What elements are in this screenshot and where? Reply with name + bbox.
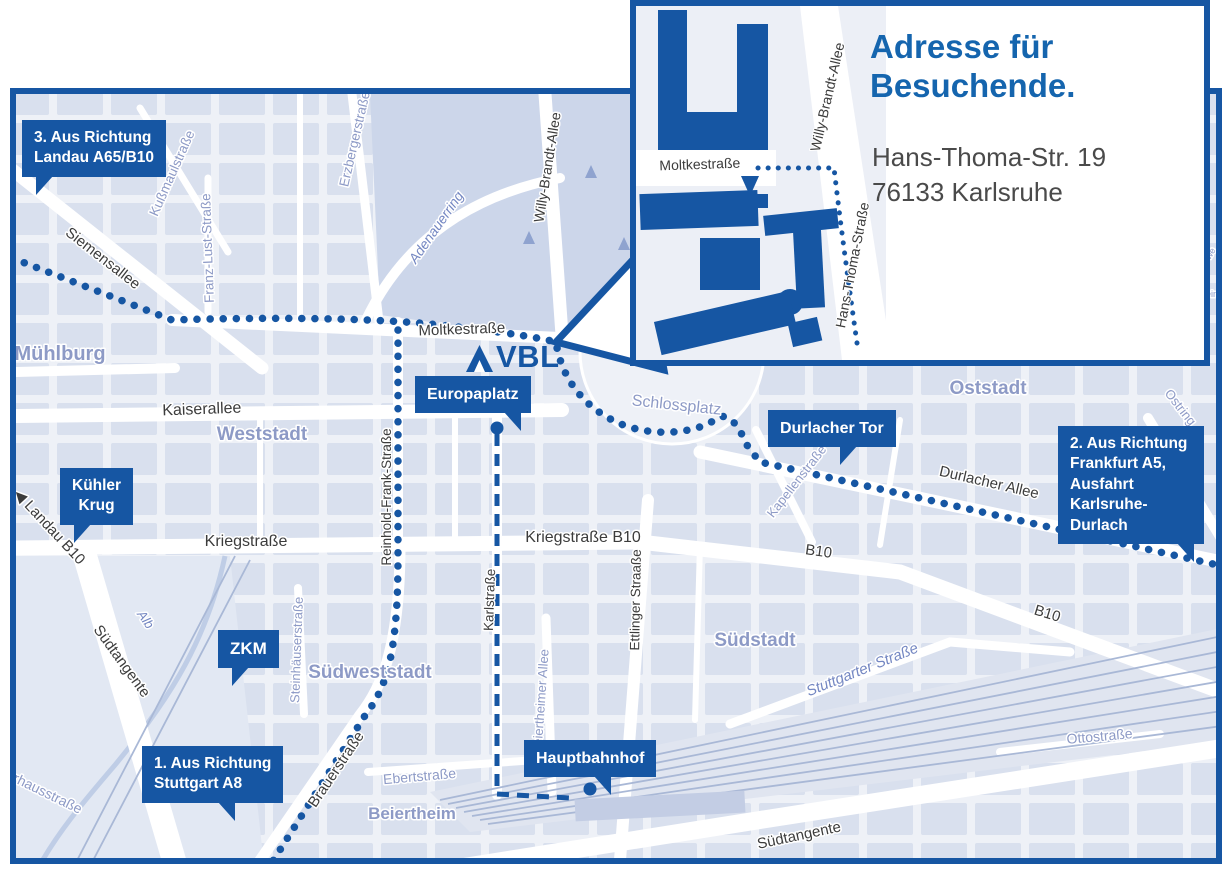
badge-route2-frankfurt: 2. Aus Richtung Frankfurt A5, Ausfahrt K… [1058,426,1204,544]
badge-route2-line1: 2. Aus Richtung [1070,434,1192,454]
badge-kuehler-line1: Kühler [72,476,121,496]
badge-europaplatz: Europaplatz [415,376,531,413]
badge-route2-line2: Frankfurt A5, [1070,454,1192,474]
badge-route1-stuttgart: 1. Aus Richtung Stuttgart A8 [142,746,283,803]
address-inset-card: Moltkestraße Willy-Brandt-Allee Hans-Tho… [630,0,1210,366]
district-label-beiertheim: Beiertheim [368,804,456,823]
badge-route1-line2: Stuttgart A8 [154,774,271,794]
visitor-address: Hans-Thoma-Str. 19 76133 Karlsruhe [872,140,1106,210]
inset-label-moltkestrasse: Moltkestraße [659,155,741,174]
street-label-kriegstrasse-b10: Kriegstraße B10 [525,529,641,546]
district-label-muehlburg: Mühlburg [16,343,106,365]
district-label-oststadt: Oststadt [949,378,1027,399]
badge-zkm-label: ZKM [230,639,267,658]
street-label-moltkestrasse: Moltkestraße [418,319,505,339]
badge-route3-landau: 3. Aus Richtung Landau A65/B10 [22,120,166,177]
street-label-reinhold-frank-strasse: Reinhold-Frank-Straße [379,428,394,565]
badge-hauptbahnhof-label: Hauptbahnhof [536,750,644,767]
europaplatz-dot [491,422,504,435]
street-label-kaiserallee: Kaiserallee [162,400,242,420]
badge-route2-line3: Ausfahrt [1070,475,1192,495]
inset-title-line1: Adresse für [870,28,1075,67]
badge-route3-line2: Landau A65/B10 [34,148,154,168]
badge-hauptbahnhof: Hauptbahnhof [524,740,656,777]
badge-kuehler-line2: Krug [72,496,121,516]
street-label-kriegstrasse: Kriegstraße [205,533,288,550]
vbl-triangle-icon [466,345,493,372]
badge-route3-line1: 3. Aus Richtung [34,128,154,148]
address-street: Hans-Thoma-Str. 19 [872,140,1106,175]
inset-title: Adresse für Besuchende. [870,28,1075,106]
badge-route2-line4: Karlsruhe-Durlach [1070,495,1192,536]
vbl-logo-text: VBL [496,341,560,372]
badge-route1-line1: 1. Aus Richtung [154,754,271,774]
district-label-weststadt: Weststadt [217,424,308,445]
vbl-directions-map: Siemensallee Kußmaulstraße Franz-Lust-St… [0,0,1230,874]
badge-europaplatz-label: Europaplatz [427,386,519,403]
inset-title-line2: Besuchende. [870,67,1075,106]
district-label-suedstadt: Südstadt [714,630,796,651]
badge-zkm: ZKM [218,630,279,668]
vbl-logo: VBL [466,341,560,372]
address-city: 76133 Karlsruhe [872,175,1106,210]
badge-durlacher-tor-label: Durlacher Tor [780,420,884,437]
badge-kuehler-krug: Kühler Krug [60,468,133,525]
badge-durlacher-tor: Durlacher Tor [768,410,896,447]
street-label-karlstrasse: Karlstraße [481,568,498,631]
street-label-ettlinger-strasse: Ettlinger Straaße [627,549,644,651]
district-label-suedweststadt: Südweststadt [308,662,432,683]
